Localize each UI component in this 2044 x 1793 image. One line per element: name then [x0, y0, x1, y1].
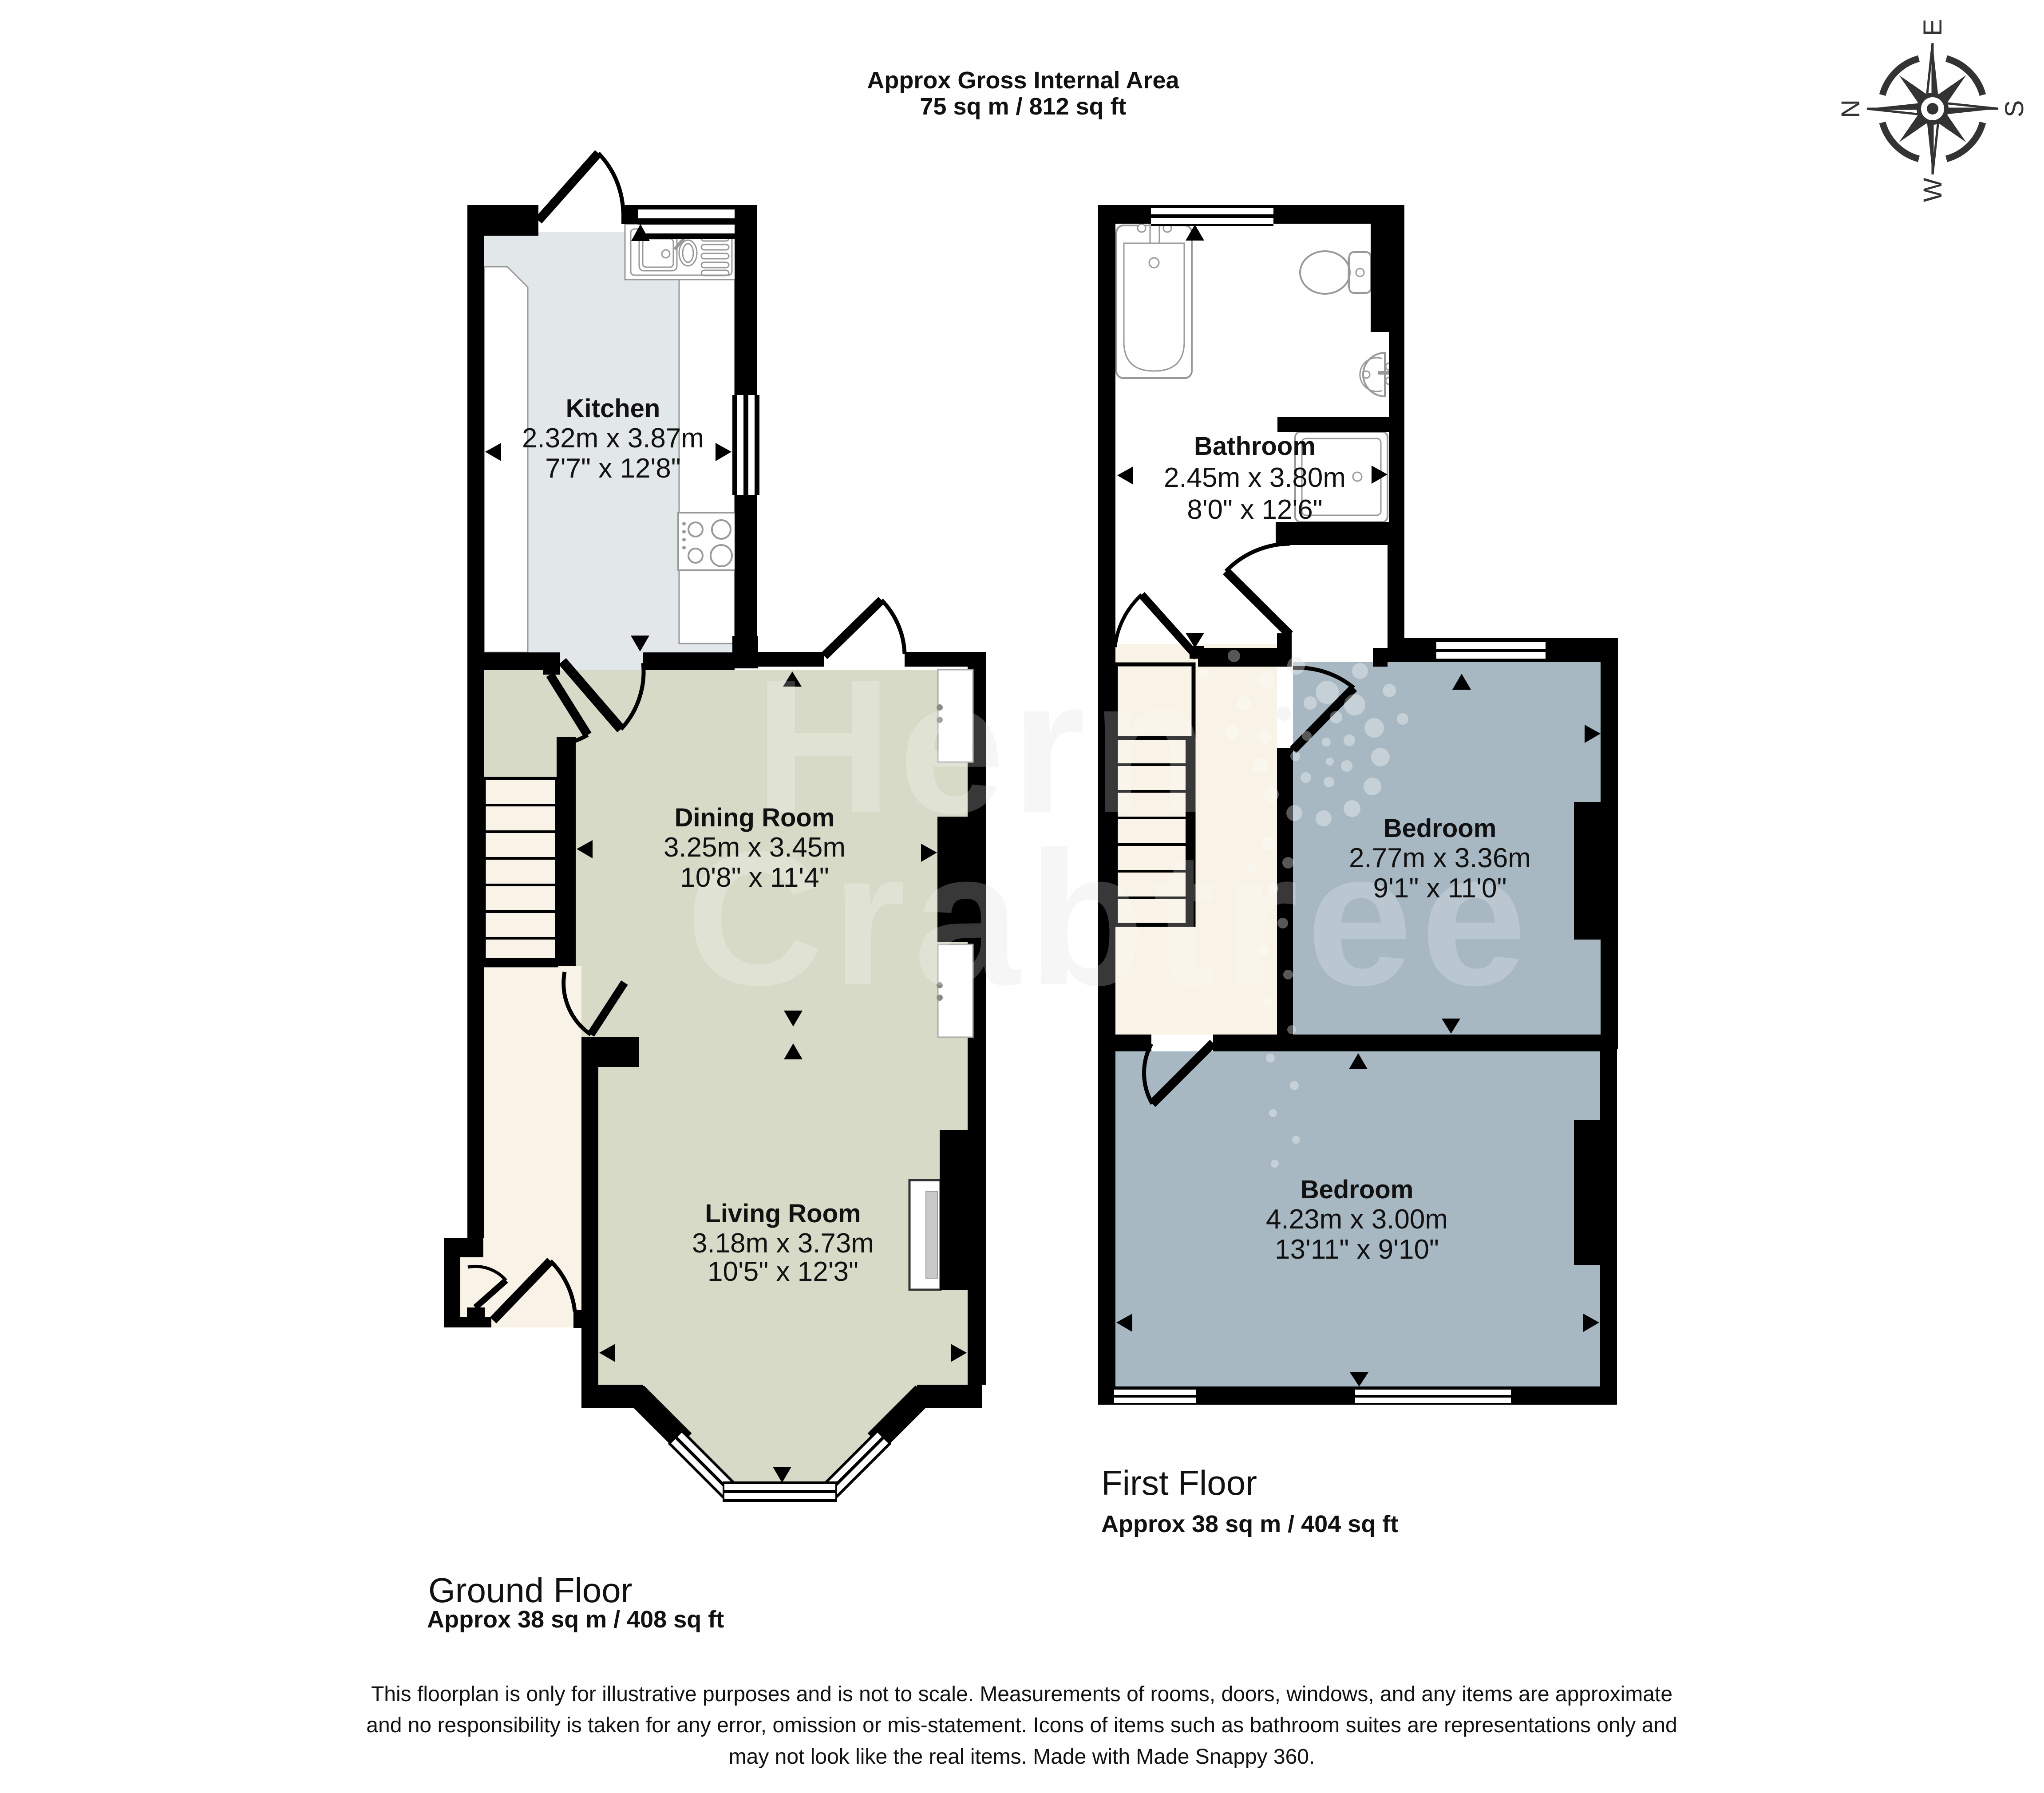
svg-text:9'1" x 11'0": 9'1" x 11'0": [1373, 873, 1507, 904]
svg-text:7'7" x 12'8": 7'7" x 12'8": [545, 453, 681, 484]
svg-text:Kitchen: Kitchen: [566, 394, 660, 423]
svg-text:W: W: [1918, 178, 1947, 202]
svg-text:N: N: [1836, 99, 1865, 118]
svg-text:Ground Floor: Ground Floor: [428, 1571, 633, 1610]
svg-text:Approx 38 sq m / 404 sq ft: Approx 38 sq m / 404 sq ft: [1101, 1511, 1398, 1537]
svg-text:10'5" x 12'3": 10'5" x 12'3": [708, 1256, 858, 1287]
svg-text:4.23m x 3.00m: 4.23m x 3.00m: [1266, 1204, 1448, 1235]
svg-text:2.45m x 3.80m: 2.45m x 3.80m: [1164, 462, 1346, 493]
svg-text:Dining Room: Dining Room: [675, 803, 835, 832]
svg-text:8'0" x 12'6": 8'0" x 12'6": [1187, 494, 1323, 525]
svg-text:Approx Gross Internal Area: Approx Gross Internal Area: [867, 67, 1179, 94]
svg-text:2.77m x 3.36m: 2.77m x 3.36m: [1349, 843, 1531, 873]
svg-text:13'11" x 9'10": 13'11" x 9'10": [1275, 1234, 1439, 1265]
svg-text:2.32m x 3.87m: 2.32m x 3.87m: [522, 423, 704, 454]
svg-text:S: S: [2000, 100, 2029, 118]
svg-text:10'8" x 11'4": 10'8" x 11'4": [680, 862, 829, 893]
svg-text:First Floor: First Floor: [1101, 1463, 1257, 1502]
svg-text:Living Room: Living Room: [705, 1199, 861, 1228]
svg-text:Bathroom: Bathroom: [1194, 432, 1316, 461]
svg-text:75 sq m / 812 sq ft: 75 sq m / 812 sq ft: [920, 93, 1126, 120]
svg-text:and no responsibility is taken: and no responsibility is taken for any e…: [366, 1714, 1677, 1737]
svg-text:Bedroom: Bedroom: [1301, 1175, 1414, 1204]
svg-text:This floorplan is only for ill: This floorplan is only for illustrative …: [371, 1682, 1672, 1706]
svg-text:may not look like the real ite: may not look like the real items. Made w…: [729, 1745, 1315, 1769]
svg-text:Approx 38 sq m / 408 sq ft: Approx 38 sq m / 408 sq ft: [427, 1606, 724, 1633]
svg-text:E: E: [1918, 19, 1947, 36]
svg-text:3.25m x 3.45m: 3.25m x 3.45m: [664, 832, 846, 863]
svg-text:3.18m x 3.73m: 3.18m x 3.73m: [692, 1228, 874, 1259]
svg-text:Bedroom: Bedroom: [1384, 814, 1497, 843]
